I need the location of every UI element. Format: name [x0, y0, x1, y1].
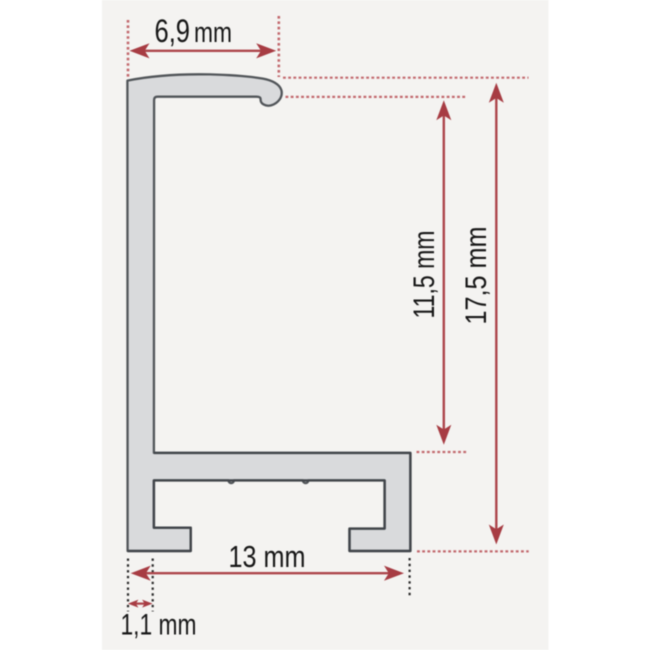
svg-text:1,1 mm: 1,1 mm: [121, 609, 197, 642]
svg-text:17,5 mm: 17,5 mm: [460, 227, 493, 325]
svg-text:13 mm: 13 mm: [229, 539, 306, 574]
svg-text:6,9: 6,9: [155, 13, 191, 49]
svg-text:11,5 mm: 11,5 mm: [408, 231, 441, 319]
svg-text:mm: mm: [194, 17, 232, 49]
